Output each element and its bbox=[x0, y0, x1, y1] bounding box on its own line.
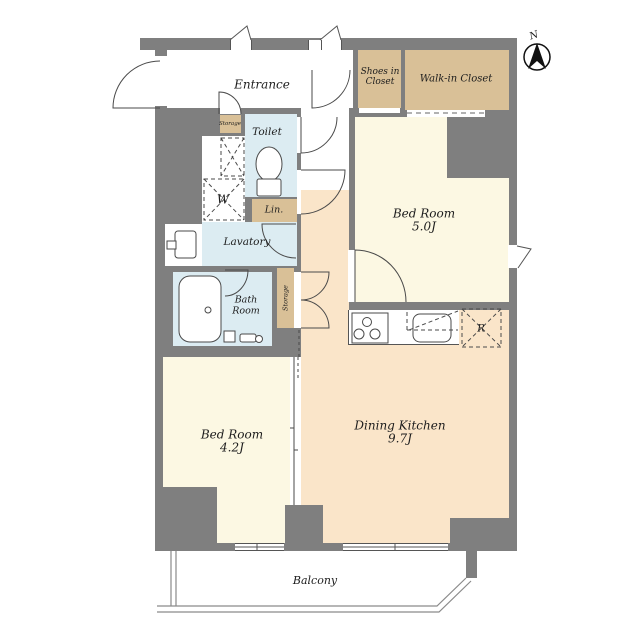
washer-nook bbox=[202, 136, 245, 222]
north-arrow-icon bbox=[524, 43, 550, 70]
bedroom-1-door-gap bbox=[348, 250, 355, 302]
label-storage-hall: Storage bbox=[282, 285, 289, 311]
label-bedroom-2: Bed Room 4.2J bbox=[201, 429, 263, 456]
label-walkin-closet: Walk-in Closet bbox=[420, 73, 493, 84]
balcony-wall-stub bbox=[466, 551, 477, 578]
lavatory-door-gap bbox=[297, 170, 301, 214]
corridor bbox=[301, 190, 349, 310]
wall-stub-top-left bbox=[140, 38, 155, 50]
label-toilet: Toilet bbox=[252, 127, 282, 139]
label-shoes-closet: Shoes in Closet bbox=[361, 67, 400, 87]
label-refrigerator: R bbox=[477, 323, 485, 334]
label-lavatory: Lavatory bbox=[224, 237, 271, 249]
sliding-door-strip bbox=[290, 357, 301, 505]
wall-block-slide-door bbox=[285, 505, 323, 551]
label-bedroom-1: Bed Room 5.0J bbox=[393, 208, 455, 235]
storage-entrance-opening bbox=[220, 108, 241, 114]
top-small-window bbox=[308, 40, 322, 50]
sink-nook bbox=[165, 224, 202, 266]
walkin-closet-opening bbox=[407, 110, 485, 117]
kitchen-counter bbox=[348, 310, 459, 345]
label-bathroom: Bath Room bbox=[232, 295, 260, 316]
toilet-door-gap bbox=[297, 117, 301, 153]
label-balcony: Balcony bbox=[293, 575, 337, 587]
room-bedroom-1-east bbox=[447, 178, 509, 302]
entrance-door-gap bbox=[155, 56, 167, 106]
right-vent-flap bbox=[517, 246, 531, 268]
top-vent-window-2 bbox=[320, 40, 342, 50]
label-dining-kitchen: Dining Kitchen 9.7J bbox=[354, 420, 445, 447]
label-washer: W bbox=[217, 193, 229, 206]
wall-block-bottom-right bbox=[450, 518, 517, 551]
label-storage-entrance: Storage bbox=[219, 121, 241, 127]
label-north: N bbox=[528, 29, 540, 42]
top-vent-window-1 bbox=[230, 40, 252, 50]
floor-plan: Entrance Shoes in Closet Walk-in Closet … bbox=[0, 0, 640, 640]
shoes-closet-opening bbox=[359, 108, 400, 113]
hallway bbox=[301, 108, 349, 190]
label-entrance: Entrance bbox=[234, 78, 290, 91]
label-linen: Lin. bbox=[265, 206, 284, 217]
storage-hall-door-gap bbox=[294, 272, 301, 328]
right-vent-window bbox=[508, 245, 517, 268]
balcony-window-bedroom bbox=[235, 543, 284, 551]
wall-notch-bottom-left bbox=[155, 487, 217, 551]
balcony-window-dining bbox=[343, 543, 448, 551]
door-arc-entrance-main bbox=[113, 61, 160, 108]
